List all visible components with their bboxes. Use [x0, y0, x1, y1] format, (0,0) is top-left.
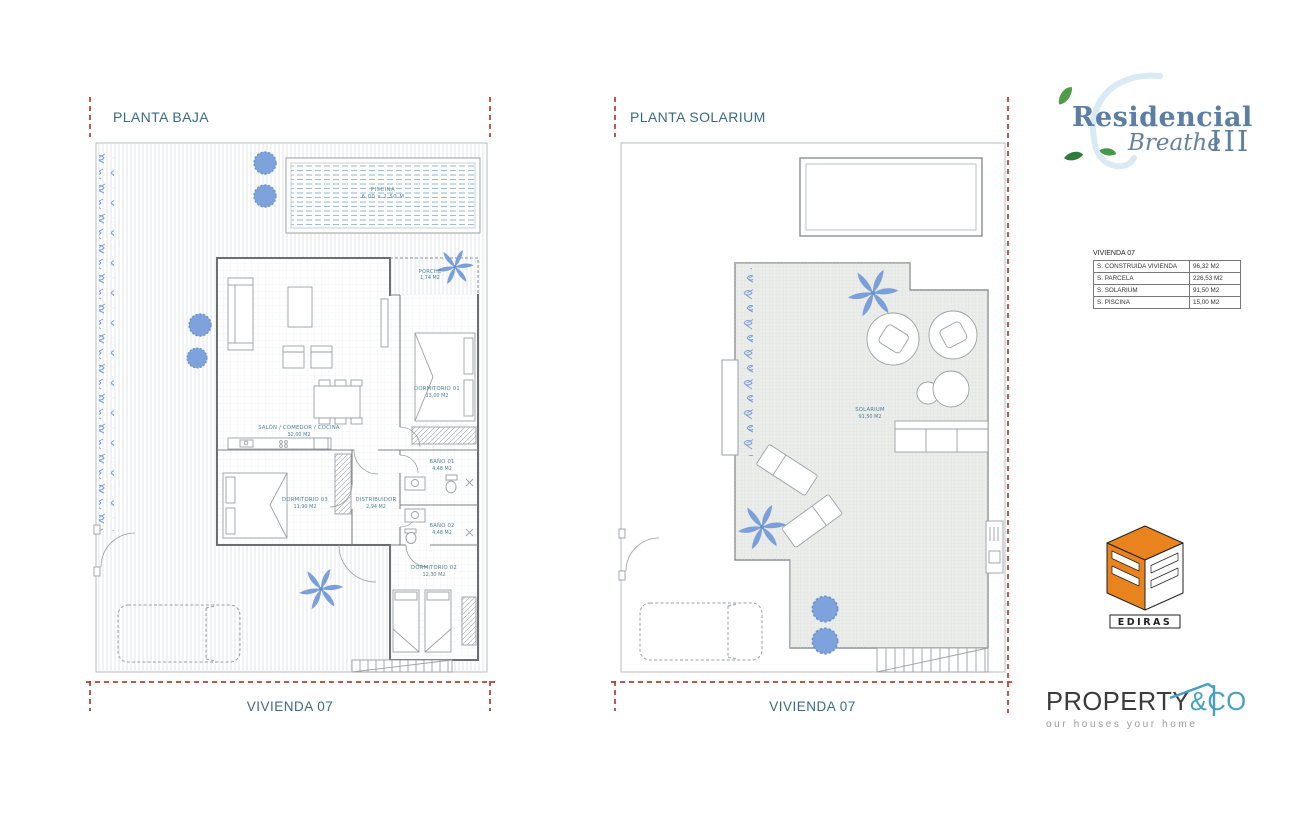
table-row: S. PISCINA 15,00 M2	[1094, 297, 1241, 309]
room-label-salon: SALÓN / COMEDOR / COCINA	[258, 424, 340, 431]
boundary-dash	[489, 681, 491, 711]
bush-icon	[189, 314, 211, 336]
room-area-dormitorio2: 12,30 M2	[423, 572, 446, 578]
hedge-strip	[738, 268, 753, 456]
round-chair	[929, 311, 977, 359]
pool-dim: 6,00 x 2,50 M	[362, 194, 405, 200]
house-outline-icon	[1166, 680, 1226, 722]
left-plan-title: PLANTA BAJA	[113, 109, 209, 125]
boundary-dash	[86, 681, 495, 683]
residencial-breathe-logo: Residencial Breathe III	[1040, 66, 1280, 196]
round-chair	[867, 313, 919, 365]
room-area-solarium: 91,50 M2	[859, 414, 882, 420]
room-area-distribuidor: 2,94 M2	[366, 504, 386, 510]
stairs	[877, 648, 988, 672]
stairs	[352, 660, 452, 672]
planta-baja-drawing: PISCINA 6,00 x 2,50 M	[90, 137, 490, 678]
kitchen-counter	[228, 438, 331, 449]
room-area-porche: 1,74 M2	[420, 275, 440, 281]
room-label-solarium: SOLARIUM	[855, 407, 885, 413]
room-label-distribuidor: DISTRIBUIDOR	[356, 497, 397, 503]
row-label: S. PARCELA	[1094, 273, 1190, 285]
row-label: S. CONSTRUIDA VIVIENDA	[1094, 261, 1190, 273]
area-summary: VIVIENDA 07 S. CONSTRUIDA VIVIENDA 96,32…	[1093, 250, 1243, 309]
ediras-logo: EDIRAS	[1095, 524, 1195, 630]
table-row: S. SOLARIUM 91,50 M2	[1094, 285, 1241, 297]
bush-icon	[254, 152, 276, 174]
room-area-bano2: 4,48 M2	[432, 530, 452, 536]
room-area-salon: 32,00 M2	[288, 432, 311, 438]
room-area-bano1: 4,48 M2	[432, 466, 452, 472]
room-label-bano2: BAÑO 02	[429, 522, 454, 529]
brand-numeral: III	[1210, 124, 1250, 158]
room-label-dormitorio2: DORMITORIO 02	[411, 565, 457, 571]
left-plan-caption: VIVIENDA 07	[90, 699, 490, 714]
row-label: S. SOLARIUM	[1094, 285, 1190, 297]
pool-name: PISCINA	[371, 187, 395, 193]
summary-table: S. CONSTRUIDA VIVIENDA 96,32 M2 S. PARCE…	[1093, 260, 1241, 309]
planta-solarium-drawing: SOLARIUM 91,50 M2	[615, 137, 1010, 678]
row-value: 96,32 M2	[1190, 261, 1241, 273]
boundary-dash	[489, 97, 491, 137]
boundary-dash	[614, 97, 616, 137]
propertyco-logo: PROPERTY&CO our houses your home	[1046, 688, 1256, 744]
room-area-dormitorio3: 11,90 M2	[294, 504, 317, 510]
pillar	[722, 360, 738, 455]
ediras-cube-icon: EDIRAS	[1095, 524, 1195, 630]
boundary-dash	[614, 681, 616, 711]
beds-single	[393, 590, 476, 652]
brand-subname: Breathe	[1128, 130, 1221, 156]
table-row: S. PARCELA 226,53 M2	[1094, 273, 1241, 285]
room-label-dormitorio1: DORMITORIO 01	[414, 386, 460, 392]
right-plan-title: PLANTA SOLARIUM	[630, 109, 766, 125]
room-area-dormitorio1: 13,00 M2	[426, 393, 449, 399]
boundary-dash	[611, 681, 1015, 683]
bush-icon	[254, 185, 276, 207]
boundary-dash	[89, 681, 91, 711]
pool: PISCINA 6,00 x 2,50 M	[286, 158, 480, 233]
boundary-dash	[89, 97, 91, 137]
summary-title: VIVIENDA 07	[1093, 250, 1243, 257]
propertyco-wordmark: PROPERTY&CO	[1046, 688, 1256, 717]
row-label: S. PISCINA	[1094, 297, 1190, 309]
row-value: 91,50 M2	[1190, 285, 1241, 297]
bush-icon	[812, 596, 837, 621]
table-row: S. CONSTRUIDA VIVIENDA 96,32 M2	[1094, 261, 1241, 273]
row-value: 15,00 M2	[1190, 297, 1241, 309]
right-plan-caption: VIVIENDA 07	[615, 699, 1010, 714]
bush-icon	[812, 628, 837, 653]
pool-opening	[800, 158, 982, 236]
ediras-wordmark: EDIRAS	[1118, 617, 1172, 628]
bush-icon	[187, 348, 207, 368]
room-label-bano1: BAÑO 01	[429, 458, 454, 465]
sofa	[895, 421, 988, 452]
hedge-strip	[99, 149, 114, 531]
floorplan-sheet: PLANTA BAJA PLANTA SOLARIUM VIVIENDA 07 …	[0, 0, 1290, 840]
row-value: 226,53 M2	[1190, 273, 1241, 285]
room-label-dormitorio3: DORMITORIO 03	[282, 497, 328, 503]
summer-kitchen	[986, 521, 1003, 573]
